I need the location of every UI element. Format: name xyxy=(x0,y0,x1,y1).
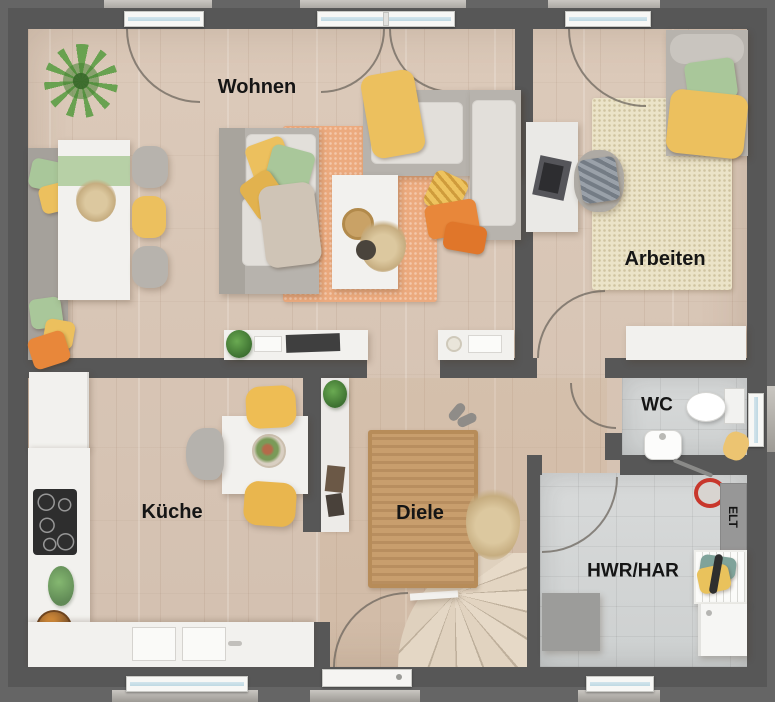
wc-faucet xyxy=(659,433,666,440)
table-centerpiece xyxy=(76,178,116,222)
room-label-diele: Diele xyxy=(396,503,444,523)
kitchen-chair-yellow xyxy=(243,480,298,528)
vase xyxy=(356,240,376,260)
window-glass xyxy=(590,682,650,686)
window-living-left xyxy=(124,11,204,27)
wall-left xyxy=(8,8,28,687)
shelf-plant xyxy=(323,380,347,408)
exterior-patch xyxy=(310,690,420,702)
cooktop xyxy=(33,489,77,555)
potted-palm-plant xyxy=(44,44,118,118)
window-glass xyxy=(128,17,200,21)
toilet-tank xyxy=(724,388,745,424)
office-chair-pillow xyxy=(577,156,621,205)
room-label-hwr-har: HWR/HAR xyxy=(587,562,679,581)
room-label-arbeiten: Arbeiten xyxy=(624,249,705,269)
kitchen-faucet xyxy=(228,641,242,646)
window-hwr xyxy=(586,676,654,692)
window-living-double xyxy=(317,11,455,27)
kitchen-sink-basin xyxy=(182,627,226,661)
decor-books xyxy=(468,335,502,353)
kitchen-chair-grey xyxy=(186,428,224,480)
window-glass xyxy=(130,682,244,686)
daybed-blanket-yellow xyxy=(665,88,749,160)
shelf-picture-frame xyxy=(326,493,345,517)
room-label-wohnen: Wohnen xyxy=(218,77,297,97)
wall-kitchen-stub xyxy=(312,622,330,667)
dining-chair xyxy=(132,146,168,188)
shelf-picture-frame xyxy=(325,465,346,493)
salad-bowl xyxy=(252,434,286,468)
window-glass xyxy=(569,17,647,21)
dried-grass-plant xyxy=(466,484,520,560)
window-glass xyxy=(754,397,758,443)
kitchen-flower-vase xyxy=(48,566,74,606)
kitchen-tall-cabinet xyxy=(29,372,89,448)
tv-flatscreen xyxy=(286,333,341,353)
sideboard-decor xyxy=(254,336,282,352)
wall-hwr-left xyxy=(527,475,540,667)
sofa-seat-cushion xyxy=(472,100,516,226)
window-office xyxy=(565,11,651,27)
sideboard-plant xyxy=(226,330,252,358)
kitchen-sink-basin xyxy=(132,627,176,661)
utility-cabinet xyxy=(542,593,600,651)
toilet-bowl xyxy=(686,392,726,422)
wall-living-hall xyxy=(440,358,537,378)
kitchen-chair-yellow xyxy=(245,385,297,430)
window-mullion xyxy=(383,12,389,26)
room-label-wc: WC xyxy=(641,396,673,415)
sofa-throw-blanket xyxy=(257,181,323,269)
room-label-kueche: Küche xyxy=(141,502,202,522)
room-label-elt: ELT xyxy=(727,506,739,528)
washer-dial xyxy=(706,610,712,616)
wall-office-wc xyxy=(605,358,747,378)
floor-plan: Wohnen Arbeiten Küche Diele WC HWR/HAR E… xyxy=(0,0,775,702)
dining-chair-yellow xyxy=(132,196,166,238)
wall-wc-hwr-left xyxy=(527,455,542,475)
entrance-door-handle xyxy=(396,674,402,680)
candle xyxy=(446,336,462,352)
wall-right xyxy=(747,8,767,687)
dining-chair xyxy=(132,246,168,288)
office-lowboard xyxy=(626,326,746,360)
window-kitchen xyxy=(126,676,248,692)
window-wc xyxy=(748,393,764,447)
